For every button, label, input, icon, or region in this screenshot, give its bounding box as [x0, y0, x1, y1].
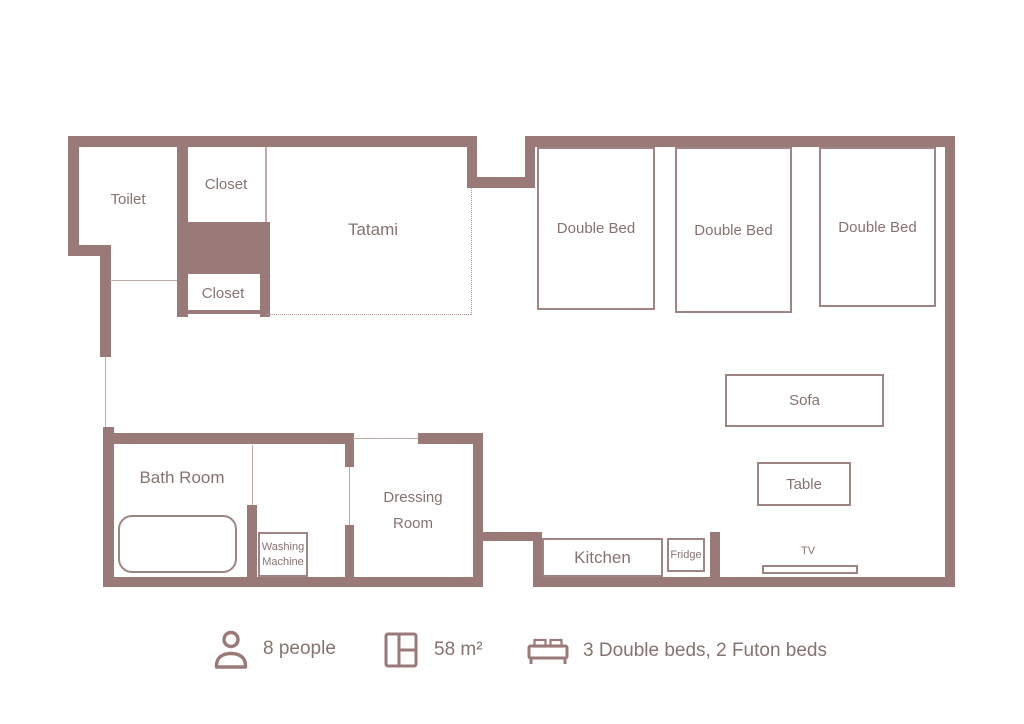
toilet-partition-line — [110, 280, 177, 281]
wall-top-right — [525, 136, 955, 147]
person-icon — [212, 629, 250, 669]
fridge-label: Fridge — [670, 548, 701, 563]
washdress-door-line — [349, 467, 350, 525]
wall-dressing-right — [473, 435, 483, 587]
kitchen-counter: Kitchen — [542, 538, 663, 577]
double-bed-3: Double Bed — [819, 147, 936, 307]
wall-toilet-left — [68, 136, 79, 256]
tv-label: TV — [778, 544, 838, 559]
sofa-label: Sofa — [789, 392, 820, 409]
left-door-line — [105, 357, 106, 427]
wall-door-recess-cap — [483, 532, 538, 541]
double-bed-1-label: Double Bed — [557, 220, 635, 237]
wall-top-left — [68, 136, 477, 147]
washing-machine: Washing Machine — [258, 532, 308, 577]
table: Table — [757, 462, 851, 506]
wall-wash-divider — [247, 505, 257, 587]
double-bed-1: Double Bed — [537, 147, 655, 310]
legend-capacity-text: 8 people — [263, 638, 336, 660]
legend-area-text: 58 m² — [434, 639, 483, 661]
closet-solid-block — [188, 222, 270, 274]
fridge: Fridge — [667, 538, 705, 572]
closet-bottom-label: Closet — [183, 285, 263, 304]
wall-washdress-bottom — [345, 525, 354, 587]
wall-bottom-left — [103, 577, 483, 587]
legend-beds: 3 Double beds, 2 Futon beds — [527, 637, 827, 665]
double-bed-2-label: Double Bed — [694, 222, 772, 239]
table-label: Table — [786, 476, 822, 493]
bath-room-label: Bath Room — [112, 467, 252, 488]
wall-right — [945, 136, 955, 587]
wall-fridge-right — [710, 532, 720, 582]
double-bed-3-label: Double Bed — [838, 219, 916, 236]
washing-machine-label: Washing Machine — [260, 540, 306, 570]
tv-stand — [762, 565, 858, 574]
bath-door-line — [353, 438, 418, 439]
dressing-room-label: Dressing Room — [363, 485, 463, 537]
legend-beds-text: 3 Double beds, 2 Futon beds — [583, 640, 827, 662]
wall-entry-notch-right — [525, 136, 535, 188]
double-bed-2: Double Bed — [675, 147, 792, 313]
legend-capacity: 8 people — [212, 629, 336, 669]
wall-bath-left — [103, 427, 114, 587]
bathtub — [118, 515, 237, 573]
wash-divider-line — [252, 445, 253, 505]
toilet-label: Toilet — [88, 191, 168, 210]
wall-left-mid — [100, 245, 111, 357]
wall-bottom-right — [533, 577, 955, 587]
wall-bath-top-2 — [418, 433, 483, 444]
tatami-label: Tatami — [323, 219, 423, 240]
legend-area: 58 m² — [384, 632, 483, 668]
sofa: Sofa — [725, 374, 884, 427]
kitchen-label: Kitchen — [574, 548, 631, 568]
tatami-boundary-right — [471, 188, 472, 315]
closet-top-label: Closet — [186, 176, 266, 195]
floor-plan-canvas: Double Bed Double Bed Double Bed Sofa Ta… — [0, 0, 1024, 724]
bed-icon — [527, 637, 569, 665]
floor-area-icon — [384, 632, 418, 668]
wall-bath-top-1 — [103, 433, 353, 444]
tatami-boundary-bottom — [267, 314, 471, 315]
